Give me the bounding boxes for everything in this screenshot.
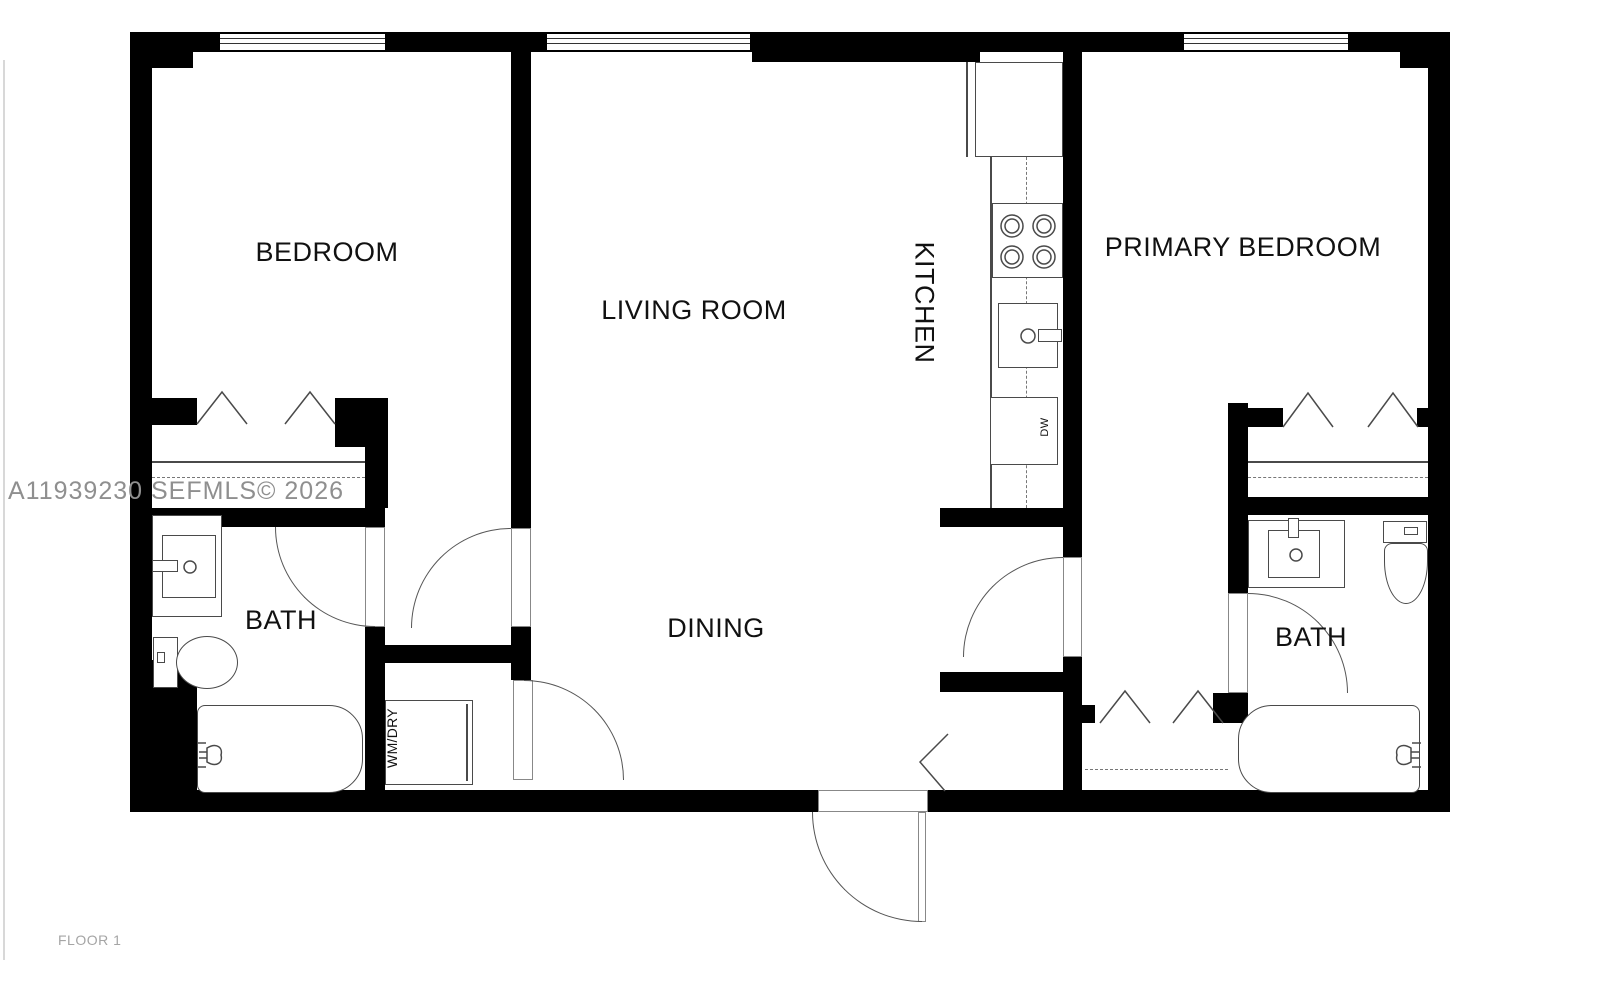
door-leaf bbox=[1063, 557, 1082, 657]
closet-shelf bbox=[1248, 461, 1428, 463]
closet-rod bbox=[1248, 477, 1428, 478]
bifold-door-chevron bbox=[1100, 691, 1150, 723]
room-label-kitchen: KITCHEN bbox=[909, 193, 940, 413]
door-leaf bbox=[511, 528, 531, 627]
wall bbox=[511, 627, 531, 680]
page-edge-line bbox=[3, 60, 5, 960]
wall bbox=[511, 52, 531, 528]
floor-label: FLOOR 1 bbox=[58, 932, 121, 948]
room-label-primary-bedroom: PRIMARY BEDROOM bbox=[1043, 232, 1443, 263]
window bbox=[545, 32, 752, 52]
mls-watermark: A11939230 SEFMLS© 2026 bbox=[8, 477, 344, 506]
door-swing bbox=[411, 528, 511, 628]
bathtub-icon bbox=[197, 705, 363, 793]
closet-shelf bbox=[152, 461, 365, 463]
flush-button bbox=[157, 652, 165, 663]
room-label-laundry: WM/DRY bbox=[384, 678, 400, 798]
wall bbox=[1063, 52, 1082, 557]
faucet-icon bbox=[152, 560, 178, 572]
wall bbox=[1228, 408, 1283, 427]
faucet-icon bbox=[1288, 518, 1299, 538]
wall bbox=[752, 32, 1182, 52]
wall bbox=[335, 398, 388, 447]
room-label-bath-right: BATH bbox=[1241, 622, 1381, 653]
faucet-icon bbox=[1038, 329, 1062, 342]
window bbox=[1182, 32, 1350, 52]
bifold-door-chevron bbox=[197, 392, 247, 424]
wall bbox=[152, 398, 197, 425]
bifold-door-chevron bbox=[920, 734, 948, 791]
window bbox=[218, 32, 387, 52]
room-label-bath-left: BATH bbox=[211, 605, 351, 636]
counter-edge bbox=[966, 62, 968, 157]
washer-dryer-door-line bbox=[466, 704, 468, 781]
wall bbox=[940, 672, 1063, 692]
toilet-icon bbox=[1384, 543, 1428, 604]
room-label-living: LIVING ROOM bbox=[544, 295, 844, 326]
wall bbox=[940, 508, 1082, 527]
wall bbox=[752, 52, 980, 62]
bifold-door-chevron bbox=[1368, 393, 1418, 427]
entry-door-swing bbox=[812, 812, 922, 922]
bathtub-icon bbox=[1238, 705, 1420, 793]
entry-threshold bbox=[818, 790, 928, 812]
wall-bottom bbox=[130, 790, 818, 812]
wall bbox=[368, 645, 511, 663]
floor-plan: DW bbox=[0, 0, 1600, 1000]
wall bbox=[1213, 693, 1248, 723]
wall bbox=[1063, 705, 1095, 723]
flush-button bbox=[1404, 527, 1418, 535]
room-label-dining: DINING bbox=[616, 613, 816, 644]
fridge-icon bbox=[975, 62, 1063, 157]
room-label-bedroom: BEDROOM bbox=[227, 237, 427, 268]
wall bbox=[365, 447, 388, 508]
bifold-door-chevron bbox=[285, 392, 335, 424]
wall-bottom bbox=[928, 790, 1450, 812]
door-swing bbox=[524, 680, 624, 780]
bifold-door-chevron bbox=[1283, 393, 1333, 427]
door-swing bbox=[963, 557, 1063, 657]
wall bbox=[1228, 515, 1248, 593]
wall bbox=[1228, 497, 1428, 515]
dishwasher-label: DW bbox=[1039, 412, 1051, 442]
closet-rod bbox=[1085, 769, 1228, 770]
wall bbox=[1063, 657, 1082, 790]
wall bbox=[1417, 408, 1450, 427]
toilet-icon bbox=[176, 636, 238, 689]
wall bbox=[387, 32, 545, 52]
